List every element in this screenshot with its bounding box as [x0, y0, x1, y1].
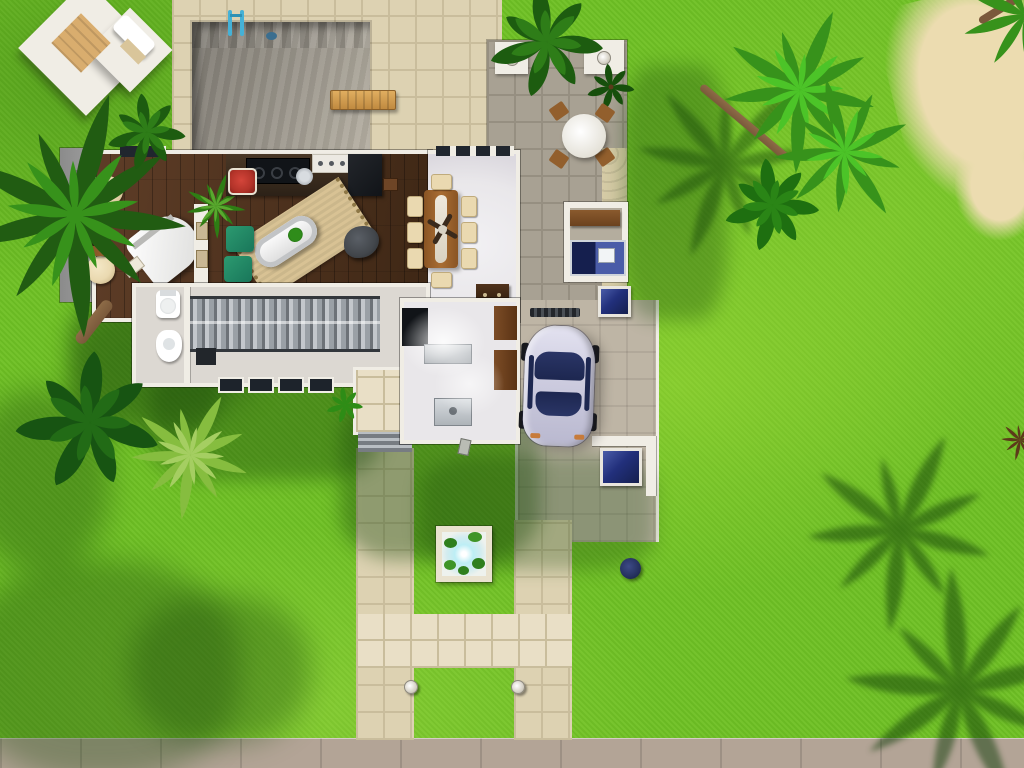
game-viewport	[0, 0, 1024, 768]
recycle-bin[interactable]	[598, 286, 631, 317]
car-rear-window	[535, 391, 582, 417]
palm-tree[interactable]	[762, 72, 927, 232]
shrub[interactable]	[102, 92, 192, 172]
palm-tree[interactable]	[118, 385, 263, 525]
green-armchair[interactable]	[224, 256, 252, 282]
dining-chair[interactable]	[461, 222, 477, 243]
counter-vent	[296, 168, 313, 185]
desk[interactable]	[570, 210, 620, 226]
pool-ladder[interactable]	[228, 10, 245, 36]
front-path-cross[interactable]	[356, 614, 572, 668]
dining-chair[interactable]	[461, 196, 477, 217]
shrub[interactable]	[492, 0, 602, 92]
wood-cabinet[interactable]	[494, 350, 517, 390]
green-armchair[interactable]	[226, 226, 254, 252]
palm-frond-corner	[950, 0, 1024, 90]
utility-fridge[interactable]	[402, 308, 428, 346]
car[interactable]	[520, 325, 600, 450]
fountain-planter[interactable]	[436, 526, 492, 582]
dining-chair[interactable]	[431, 174, 452, 190]
dining-chair[interactable]	[407, 222, 423, 243]
lamp-post[interactable]	[511, 680, 525, 694]
utility-counter[interactable]	[424, 344, 472, 364]
red-stool[interactable]	[228, 168, 257, 195]
tree-shadow	[130, 595, 310, 745]
recycle-bin[interactable]	[600, 448, 642, 486]
diving-board[interactable]	[330, 90, 396, 110]
pool-edge-stones	[192, 22, 370, 48]
dining-chair[interactable]	[431, 272, 452, 288]
refrigerator[interactable]	[348, 154, 382, 196]
door-mat	[530, 308, 580, 317]
window	[278, 377, 304, 393]
wall-art[interactable]	[196, 250, 208, 268]
blue-bed[interactable]	[570, 240, 626, 276]
pool-toy[interactable]	[266, 32, 277, 40]
sand-patch-small	[955, 130, 1024, 240]
window	[436, 146, 514, 156]
car-taillight	[574, 435, 584, 440]
ceiling-fan[interactable]	[425, 212, 459, 246]
patio-table[interactable]	[562, 114, 606, 158]
round-trash-can[interactable]	[620, 558, 641, 579]
palm-shadow	[830, 560, 1024, 768]
lamp-post[interactable]	[404, 680, 418, 694]
car-taillight	[530, 433, 540, 438]
dining-chair[interactable]	[407, 196, 423, 217]
dining-chair[interactable]	[461, 248, 477, 269]
small-crate[interactable]	[383, 178, 398, 191]
car-windshield	[534, 351, 585, 381]
bin-enclosure-wall	[646, 436, 656, 496]
porch-shrub[interactable]	[322, 384, 368, 426]
sink-unit[interactable]	[434, 398, 472, 426]
staircase[interactable]	[190, 296, 380, 352]
dining-chair[interactable]	[407, 248, 423, 269]
wood-cabinet[interactable]	[494, 306, 517, 340]
stair-landing	[196, 348, 216, 365]
palm-frond-corner	[965, 395, 1024, 485]
